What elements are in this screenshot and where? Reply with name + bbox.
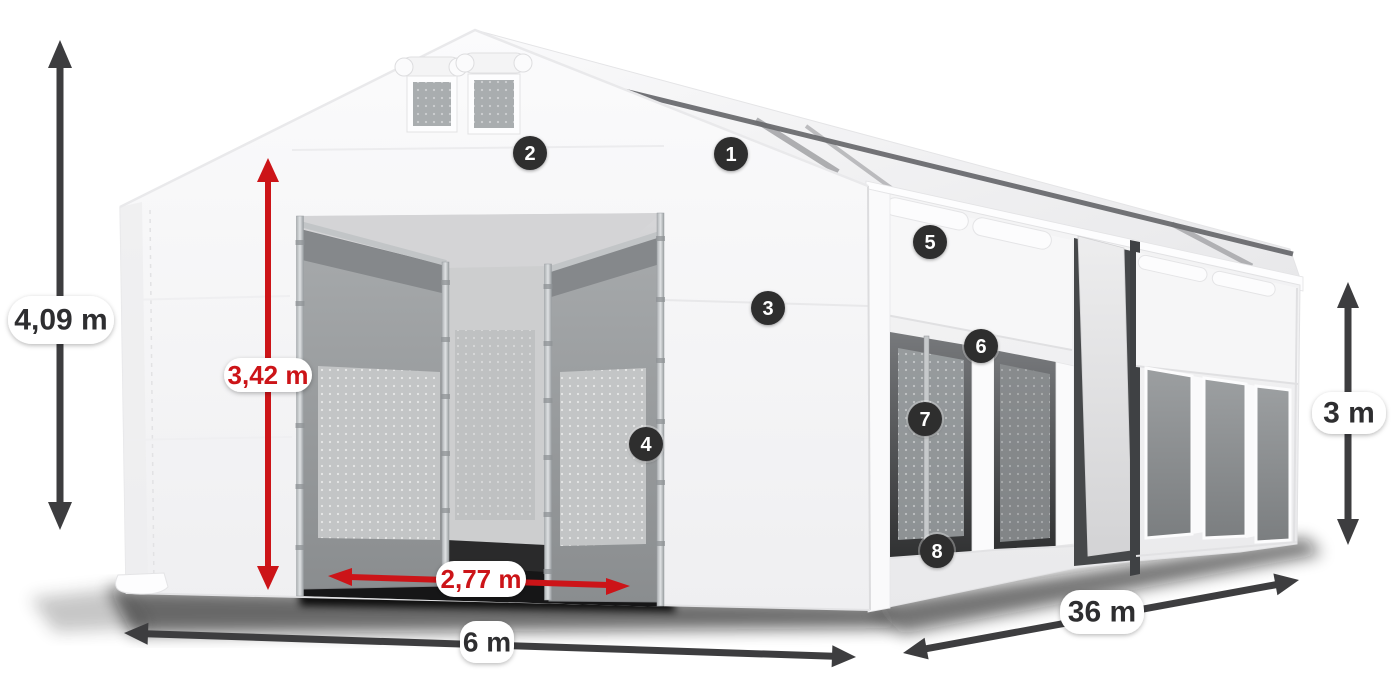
interior-pole — [924, 336, 929, 556]
side-window-far-1 — [1146, 368, 1192, 538]
callout-number: 8 — [931, 541, 942, 563]
callout-number: 3 — [762, 298, 773, 320]
arrow-right-icon — [1273, 574, 1299, 596]
entrance-opening — [296, 213, 664, 607]
arrow-up-icon — [48, 40, 72, 68]
callout-5[interactable]: 5 — [911, 223, 949, 261]
arrow-up-icon — [1337, 282, 1359, 308]
side-window-far-3 — [1256, 386, 1290, 542]
callout-2[interactable]: 2 — [511, 134, 549, 172]
side-window-bay-1 — [890, 332, 972, 558]
entrance-right-door — [548, 232, 662, 602]
dimension-label: 3,42 m — [228, 360, 309, 390]
side-pillar — [1056, 362, 1074, 546]
callout-3[interactable]: 3 — [749, 289, 787, 327]
arrow-right-icon — [832, 645, 856, 667]
side-pillar — [1192, 376, 1204, 534]
dimension-label: 36 m — [1068, 596, 1136, 629]
dimension-label: 4,09 m — [14, 304, 107, 337]
callout-number: 1 — [725, 144, 736, 166]
callout-7[interactable]: 7 — [906, 400, 944, 438]
arrow-down-icon — [1337, 519, 1359, 545]
dimension-label: 2,77 m — [441, 564, 522, 594]
open-door-panel — [1078, 236, 1132, 556]
side-window-far-2 — [1204, 378, 1246, 538]
callout-6[interactable]: 6 — [962, 327, 1000, 365]
dimension-total-height: 4,09 m — [8, 40, 114, 530]
tent-dimension-diagram: 4,09 m 3,42 m 2,77 m 6 m 36 m — [0, 0, 1400, 700]
callout-8[interactable]: 8 — [918, 532, 956, 570]
callout-4[interactable]: 4 — [627, 425, 665, 463]
callout-1[interactable]: 1 — [712, 135, 750, 173]
callout-number: 4 — [640, 434, 652, 456]
vent-mesh — [474, 80, 514, 128]
callout-number: 7 — [919, 409, 930, 431]
corner-pillar — [868, 189, 890, 612]
dimension-label: 3 m — [1323, 397, 1375, 430]
arrow-down-icon — [48, 502, 72, 530]
vent-mesh — [413, 82, 451, 126]
dimension-side-height: 3 m — [1312, 282, 1386, 545]
tarp-curl — [116, 573, 168, 594]
dimension-label: 6 m — [463, 627, 511, 658]
arrow-left-icon — [903, 638, 929, 660]
door-mesh-window — [318, 366, 440, 540]
entrance-left-door — [302, 230, 446, 589]
side-window-bay-2 — [994, 350, 1056, 550]
callout-number: 5 — [924, 232, 935, 254]
callout-number: 2 — [524, 143, 535, 165]
tent-illustration — [116, 30, 1303, 612]
side-open-section — [1074, 236, 1140, 576]
callout-number: 6 — [975, 336, 986, 358]
side-pillar — [972, 346, 994, 552]
